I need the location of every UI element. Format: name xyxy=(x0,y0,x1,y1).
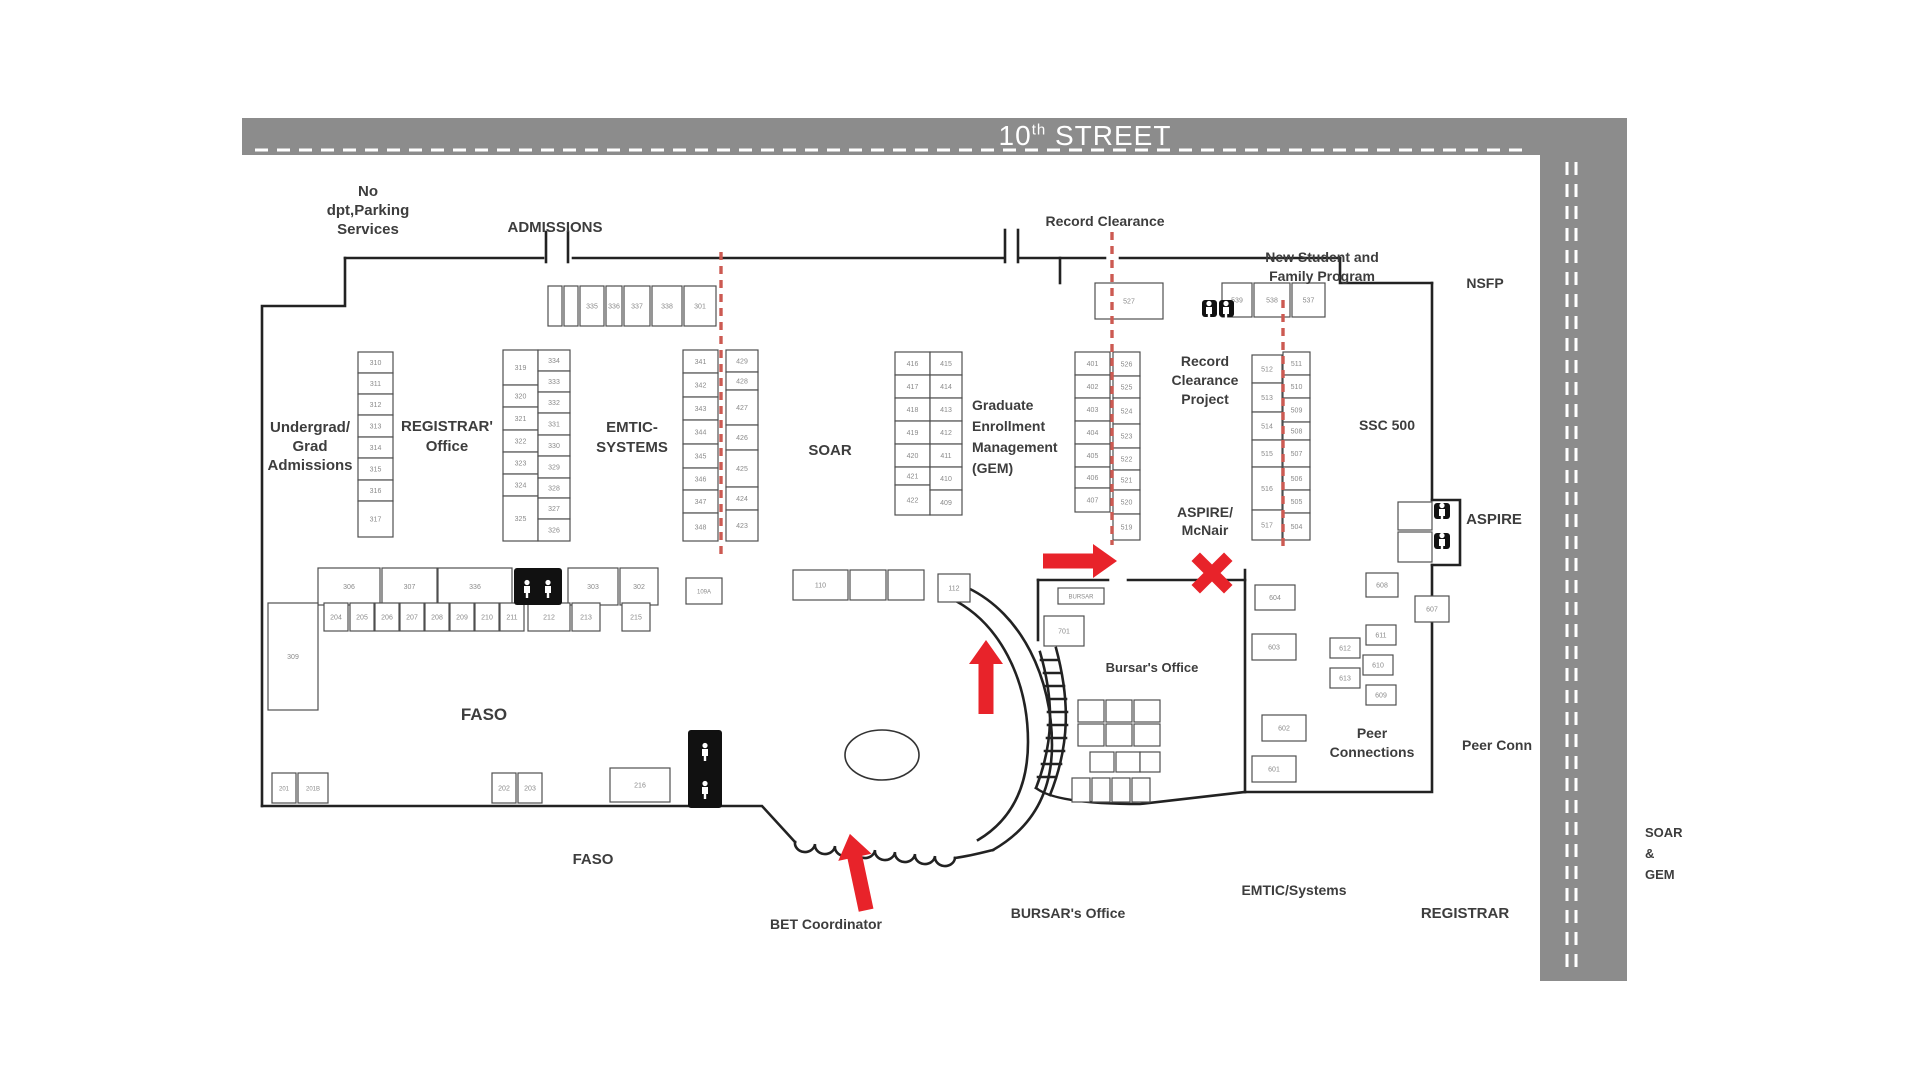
cubicle-cell xyxy=(1106,724,1132,746)
room-label-612: 612 xyxy=(1339,646,1351,653)
room-label-337: 337 xyxy=(631,304,643,311)
wall xyxy=(795,842,955,866)
room-label-204: 204 xyxy=(330,615,342,622)
room-label-109A: 109A xyxy=(697,590,711,596)
room-label-323: 323 xyxy=(515,461,527,468)
cubicle-cell xyxy=(1090,752,1114,772)
room-label-316: 316 xyxy=(370,488,382,495)
room-label-319: 319 xyxy=(515,365,527,372)
room-label-415: 415 xyxy=(940,361,952,368)
room-label-330: 330 xyxy=(548,443,560,450)
label-bet-coordinator: BET Coordinator xyxy=(770,916,883,932)
room-label-521: 521 xyxy=(1121,478,1133,485)
cubicle-cell xyxy=(548,286,562,326)
room-label-429: 429 xyxy=(736,359,748,366)
room-label-609: 609 xyxy=(1375,693,1387,700)
label-ssc-500: SSC 500 xyxy=(1359,417,1415,433)
cubicle-cell xyxy=(1132,778,1150,802)
room-label-412: 412 xyxy=(940,430,952,437)
person-head xyxy=(545,580,550,585)
room-label-211: 211 xyxy=(506,615,517,622)
room-label-110: 110 xyxy=(815,583,826,590)
label-soar-gem: SOAR&GEM xyxy=(1645,825,1683,882)
label-record-clearance-project: RecordClearanceProject xyxy=(1172,353,1239,407)
room-label-216: 216 xyxy=(634,783,646,790)
room-label-701: 701 xyxy=(1058,629,1070,636)
room-label-348: 348 xyxy=(695,525,707,532)
restroom-box xyxy=(514,568,562,605)
room-label-426: 426 xyxy=(736,435,748,442)
room-label-422: 422 xyxy=(907,498,919,505)
room-label-413: 413 xyxy=(940,407,952,414)
person-head xyxy=(1223,301,1228,306)
room-label-611: 611 xyxy=(1375,633,1386,640)
person-head xyxy=(702,743,707,748)
person-head xyxy=(1206,301,1211,306)
cubicle-cell xyxy=(1134,724,1160,746)
room-label-314: 314 xyxy=(370,445,382,452)
room-label-311: 311 xyxy=(370,381,381,388)
room-label-202: 202 xyxy=(498,786,510,793)
room-label-537: 537 xyxy=(1303,298,1315,305)
street-ordinal: th xyxy=(1032,122,1047,139)
room-label-310: 310 xyxy=(370,360,382,367)
room-label-538: 538 xyxy=(1266,298,1278,305)
room-label-212: 212 xyxy=(543,615,555,622)
room-label-329: 329 xyxy=(548,465,560,472)
room-label-402: 402 xyxy=(1087,384,1099,391)
room-label-315: 315 xyxy=(370,467,382,474)
room-label-608: 608 xyxy=(1376,583,1388,590)
room-label-414: 414 xyxy=(940,384,952,391)
label-emtic-systems: EMTIC-SYSTEMS xyxy=(596,419,668,456)
room-label-112: 112 xyxy=(948,586,959,593)
cubicle-cell xyxy=(1398,502,1432,530)
red-x-icon xyxy=(1191,552,1232,593)
room-label-331: 331 xyxy=(548,422,560,429)
label-bursars-office-mid: Bursar's Office xyxy=(1106,660,1199,675)
room-label-404: 404 xyxy=(1087,430,1099,437)
label-registrar-bottom: REGISTRAR xyxy=(1421,905,1510,922)
room-label-411: 411 xyxy=(940,453,951,460)
room-label-336: 336 xyxy=(608,304,620,311)
road-right xyxy=(1540,118,1627,981)
room-label-327: 327 xyxy=(548,506,560,513)
room-label-321: 321 xyxy=(515,416,527,423)
label-aspire: ASPIRE xyxy=(1466,511,1522,528)
person-head xyxy=(702,781,707,786)
room-label-511: 511 xyxy=(1291,361,1302,368)
lobby-ellipse xyxy=(845,730,919,780)
room-label-403: 403 xyxy=(1087,407,1099,414)
room-label-525: 525 xyxy=(1121,385,1133,392)
room-label-401: 401 xyxy=(1087,361,1099,368)
room-label-215: 215 xyxy=(630,615,642,622)
room-label-416: 416 xyxy=(907,361,919,368)
room-label-604: 604 xyxy=(1269,595,1281,602)
room-label-322: 322 xyxy=(515,439,527,446)
room-label-338: 338 xyxy=(661,304,673,311)
room-label-209: 209 xyxy=(456,615,468,622)
label-no-dpt-parking-services: Nodpt,ParkingServices xyxy=(327,183,410,238)
room-label-613: 613 xyxy=(1339,676,1351,683)
room-label-341: 341 xyxy=(695,359,707,366)
label-new-student-family-program: New Student andFamily Program xyxy=(1265,249,1379,284)
room-label-332: 332 xyxy=(548,400,560,407)
room-label-309: 309 xyxy=(287,654,299,661)
room-label-419: 419 xyxy=(907,430,919,437)
cubicle-cell xyxy=(1112,778,1130,802)
label-emtic-systems-bottom: EMTIC/Systems xyxy=(1241,882,1346,898)
room-label-607: 607 xyxy=(1426,607,1438,614)
label-faso: FASO xyxy=(461,705,507,724)
floor-plan-svg: 3353363373383013103113123133143153163173… xyxy=(0,0,1920,1080)
room-label-517: 517 xyxy=(1261,523,1273,530)
cubicle-cell xyxy=(1398,532,1432,562)
room-label-425: 425 xyxy=(736,466,748,473)
room-label-307: 307 xyxy=(404,584,416,591)
room-label-347: 347 xyxy=(695,499,707,506)
room-label-201: 201 xyxy=(279,787,290,793)
cubicle-cell xyxy=(1078,700,1104,722)
label-bursars-office-bottom: BURSAR's Office xyxy=(1011,905,1126,921)
red-arrow-to-bursar xyxy=(1043,544,1117,578)
room-label-325: 325 xyxy=(515,516,527,523)
cubicle-cell xyxy=(850,570,886,600)
cubicle-cell xyxy=(1134,700,1160,722)
red-arrow-bet-entrance xyxy=(833,830,882,913)
room-label-344: 344 xyxy=(695,430,707,437)
room-label-427: 427 xyxy=(736,405,748,412)
cubicle-cell xyxy=(1092,778,1110,802)
room-label-512: 512 xyxy=(1261,367,1273,374)
room-label-346: 346 xyxy=(695,477,707,484)
room-label-205: 205 xyxy=(356,615,368,622)
label-registrar-office: REGISTRAR'Office xyxy=(401,418,493,455)
room-label-306: 306 xyxy=(343,584,355,591)
room-label-421: 421 xyxy=(907,474,919,481)
cubicle-cell xyxy=(1140,752,1160,772)
room-label-522: 522 xyxy=(1121,457,1133,464)
room-label-423: 423 xyxy=(736,523,748,530)
room-label-203: 203 xyxy=(524,786,536,793)
room-label-513: 513 xyxy=(1261,395,1273,402)
label-aspire-mcnair: ASPIRE/McNair xyxy=(1177,504,1233,538)
room-label-210: 210 xyxy=(481,615,493,622)
person-body xyxy=(1206,307,1212,319)
room-label-206: 206 xyxy=(381,615,393,622)
label-peer-connections: PeerConnections xyxy=(1330,725,1415,760)
cubicle-cell xyxy=(1072,778,1090,802)
label-undergrad-grad-admissions: Undergrad/GradAdmissions xyxy=(267,419,352,474)
room-label-520: 520 xyxy=(1121,500,1133,507)
room-label-335: 335 xyxy=(586,304,598,311)
wall xyxy=(955,850,993,858)
room-label-516: 516 xyxy=(1261,486,1273,493)
label-peer-conn: Peer Conn xyxy=(1462,737,1532,753)
room-label-312: 312 xyxy=(370,402,382,409)
label-soar: SOAR xyxy=(808,442,852,459)
room-label-526: 526 xyxy=(1121,362,1133,369)
room-label-328: 328 xyxy=(548,486,560,493)
wall xyxy=(262,258,345,806)
room-label-302: 302 xyxy=(633,584,645,591)
room-label-326: 326 xyxy=(548,528,560,535)
person-body xyxy=(1439,509,1445,521)
room-label-213: 213 xyxy=(580,615,592,622)
room-label-514: 514 xyxy=(1261,424,1273,431)
room-label-201B: 201B xyxy=(306,787,320,793)
room-label-207: 207 xyxy=(406,615,418,622)
room-label-510: 510 xyxy=(1291,384,1303,391)
room-label-428: 428 xyxy=(736,379,748,386)
room-label-320: 320 xyxy=(515,394,527,401)
room-label-301: 301 xyxy=(694,304,706,311)
wall xyxy=(950,598,1028,840)
room-label-519: 519 xyxy=(1121,525,1133,532)
street-name-label: 10th STREET xyxy=(915,120,1255,152)
room-label-417: 417 xyxy=(907,384,919,391)
room-label-508: 508 xyxy=(1291,429,1303,436)
room-label-336: 336 xyxy=(469,584,481,591)
red-arrow-up-corridor xyxy=(969,640,1003,714)
room-label-208: 208 xyxy=(431,615,443,622)
room-label-527: 527 xyxy=(1123,299,1135,306)
room-label-418: 418 xyxy=(907,407,919,414)
room-label-407: 407 xyxy=(1087,498,1099,505)
cubicle-cell xyxy=(1078,724,1104,746)
room-label-317: 317 xyxy=(370,517,382,524)
room-label-507: 507 xyxy=(1291,451,1303,458)
room-label-334: 334 xyxy=(548,358,560,365)
cubicle-cell xyxy=(888,570,924,600)
room-label-504: 504 xyxy=(1291,524,1303,531)
room-label-601: 601 xyxy=(1268,767,1280,774)
room-label-409: 409 xyxy=(940,500,952,507)
room-label-523: 523 xyxy=(1121,434,1133,441)
room-label-324: 324 xyxy=(515,483,527,490)
label-faso-2: FASO xyxy=(573,851,614,868)
room-label-515: 515 xyxy=(1261,451,1273,458)
wall xyxy=(700,806,795,842)
room-label-424: 424 xyxy=(736,496,748,503)
room-label-BURSAR: BURSAR xyxy=(1068,595,1094,601)
room-label-410: 410 xyxy=(940,476,952,483)
floor-plan-map: 3353363373383013103113123133143153163173… xyxy=(0,0,1920,1080)
room-label-303: 303 xyxy=(587,584,599,591)
label-gem: GraduateEnrollmentManagement(GEM) xyxy=(972,397,1058,476)
room-label-333: 333 xyxy=(548,379,560,386)
room-label-420: 420 xyxy=(907,453,919,460)
room-label-509: 509 xyxy=(1291,408,1303,415)
label-nsfp: NSFP xyxy=(1466,275,1503,291)
room-label-603: 603 xyxy=(1268,645,1280,652)
room-label-342: 342 xyxy=(695,383,707,390)
person-head xyxy=(524,580,529,585)
cubicle-cell xyxy=(564,286,578,326)
wall xyxy=(1050,648,1066,795)
room-label-313: 313 xyxy=(370,424,382,431)
room-label-405: 405 xyxy=(1087,453,1099,460)
room-label-506: 506 xyxy=(1291,476,1303,483)
person-body xyxy=(1439,539,1445,551)
room-label-610: 610 xyxy=(1372,663,1384,670)
cubicle-cell xyxy=(1116,752,1140,772)
street-text: STREET xyxy=(1046,120,1171,151)
label-record-clearance: Record Clearance xyxy=(1045,213,1164,229)
room-label-505: 505 xyxy=(1291,499,1303,506)
person-head xyxy=(1439,533,1444,538)
room-label-343: 343 xyxy=(695,406,707,413)
label-admissions: ADMISSIONS xyxy=(507,219,602,236)
cubicle-cell xyxy=(1106,700,1132,722)
person-head xyxy=(1439,503,1444,508)
room-label-406: 406 xyxy=(1087,475,1099,482)
street-number: 10 xyxy=(999,120,1032,151)
room-label-524: 524 xyxy=(1121,409,1133,416)
room-label-345: 345 xyxy=(695,454,707,461)
room-label-602: 602 xyxy=(1278,726,1290,733)
